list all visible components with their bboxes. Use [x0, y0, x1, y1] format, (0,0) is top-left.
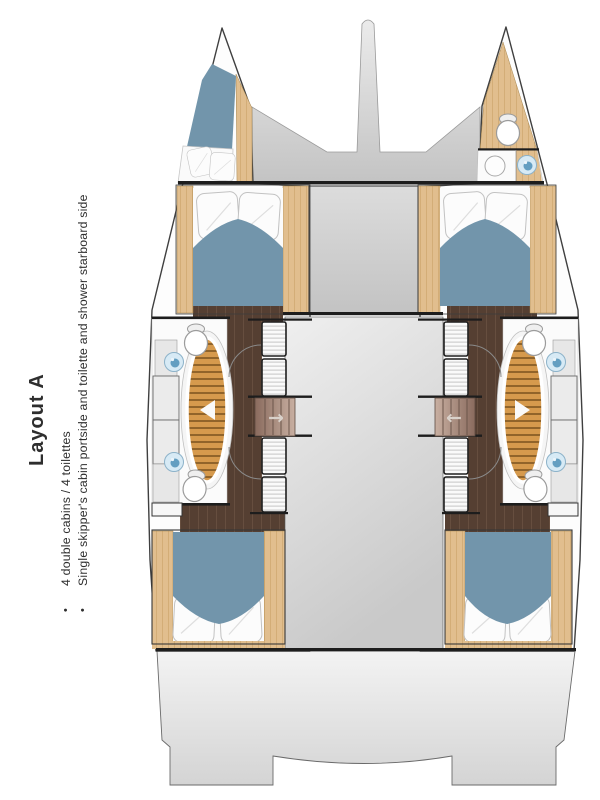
catamaran-layout-page: Layout A • 4 double cabins / 4 toilettes…	[0, 0, 600, 800]
wood-trim	[530, 186, 556, 313]
cabinet	[548, 503, 578, 516]
locker	[444, 359, 468, 396]
cabinet	[152, 503, 182, 516]
skipper-bed-duvet	[186, 64, 236, 151]
aft-cabin-starboard	[445, 530, 572, 649]
stairs-arrow-icon: ←	[446, 407, 462, 429]
pillow-icon	[209, 152, 235, 181]
stern-platform	[157, 651, 575, 785]
saloon-window	[309, 186, 418, 313]
wood-trim	[418, 186, 440, 313]
wood-trim	[445, 531, 465, 643]
forward-bulkhead	[178, 181, 544, 184]
locker	[262, 359, 286, 396]
locker	[262, 322, 286, 356]
forward-coachroof	[283, 186, 440, 313]
wall	[250, 512, 288, 514]
wood-trim	[177, 186, 193, 313]
stairs-starboard: ←	[435, 398, 475, 436]
saloon	[285, 317, 443, 650]
wall	[152, 317, 230, 320]
locker	[444, 322, 468, 356]
wood-trim	[551, 531, 572, 643]
sink-icon	[547, 353, 566, 372]
locker	[262, 438, 286, 474]
deck-plan: → ←	[0, 0, 600, 800]
aft-cabin-port	[152, 530, 285, 649]
wall	[500, 317, 578, 320]
wall	[248, 396, 312, 398]
sink-icon	[165, 453, 184, 472]
locker	[262, 477, 286, 512]
wall	[478, 148, 539, 150]
locker	[444, 477, 468, 512]
wood-trim	[283, 186, 309, 313]
locker	[444, 438, 468, 474]
wall	[248, 319, 312, 321]
wall	[418, 319, 482, 321]
toilet-icon	[523, 324, 546, 356]
sink-icon	[518, 156, 537, 175]
toilet-icon	[185, 324, 208, 356]
bulkhead-line	[283, 312, 443, 315]
stairs-port: →	[255, 398, 295, 436]
sink-icon	[547, 453, 566, 472]
wall	[418, 396, 482, 398]
wood-trim	[152, 531, 173, 643]
shower-drain	[485, 156, 505, 176]
stairs-arrow-icon: →	[268, 407, 284, 429]
wood-trim	[152, 641, 285, 649]
foredeck	[252, 20, 480, 184]
toilet-icon	[497, 114, 520, 146]
counter	[153, 376, 179, 420]
wall	[442, 512, 480, 514]
wood-trim	[264, 531, 285, 643]
aft-bulkhead	[156, 648, 576, 651]
sink-icon	[165, 353, 184, 372]
wood-trim	[445, 641, 572, 649]
counter	[551, 376, 577, 420]
